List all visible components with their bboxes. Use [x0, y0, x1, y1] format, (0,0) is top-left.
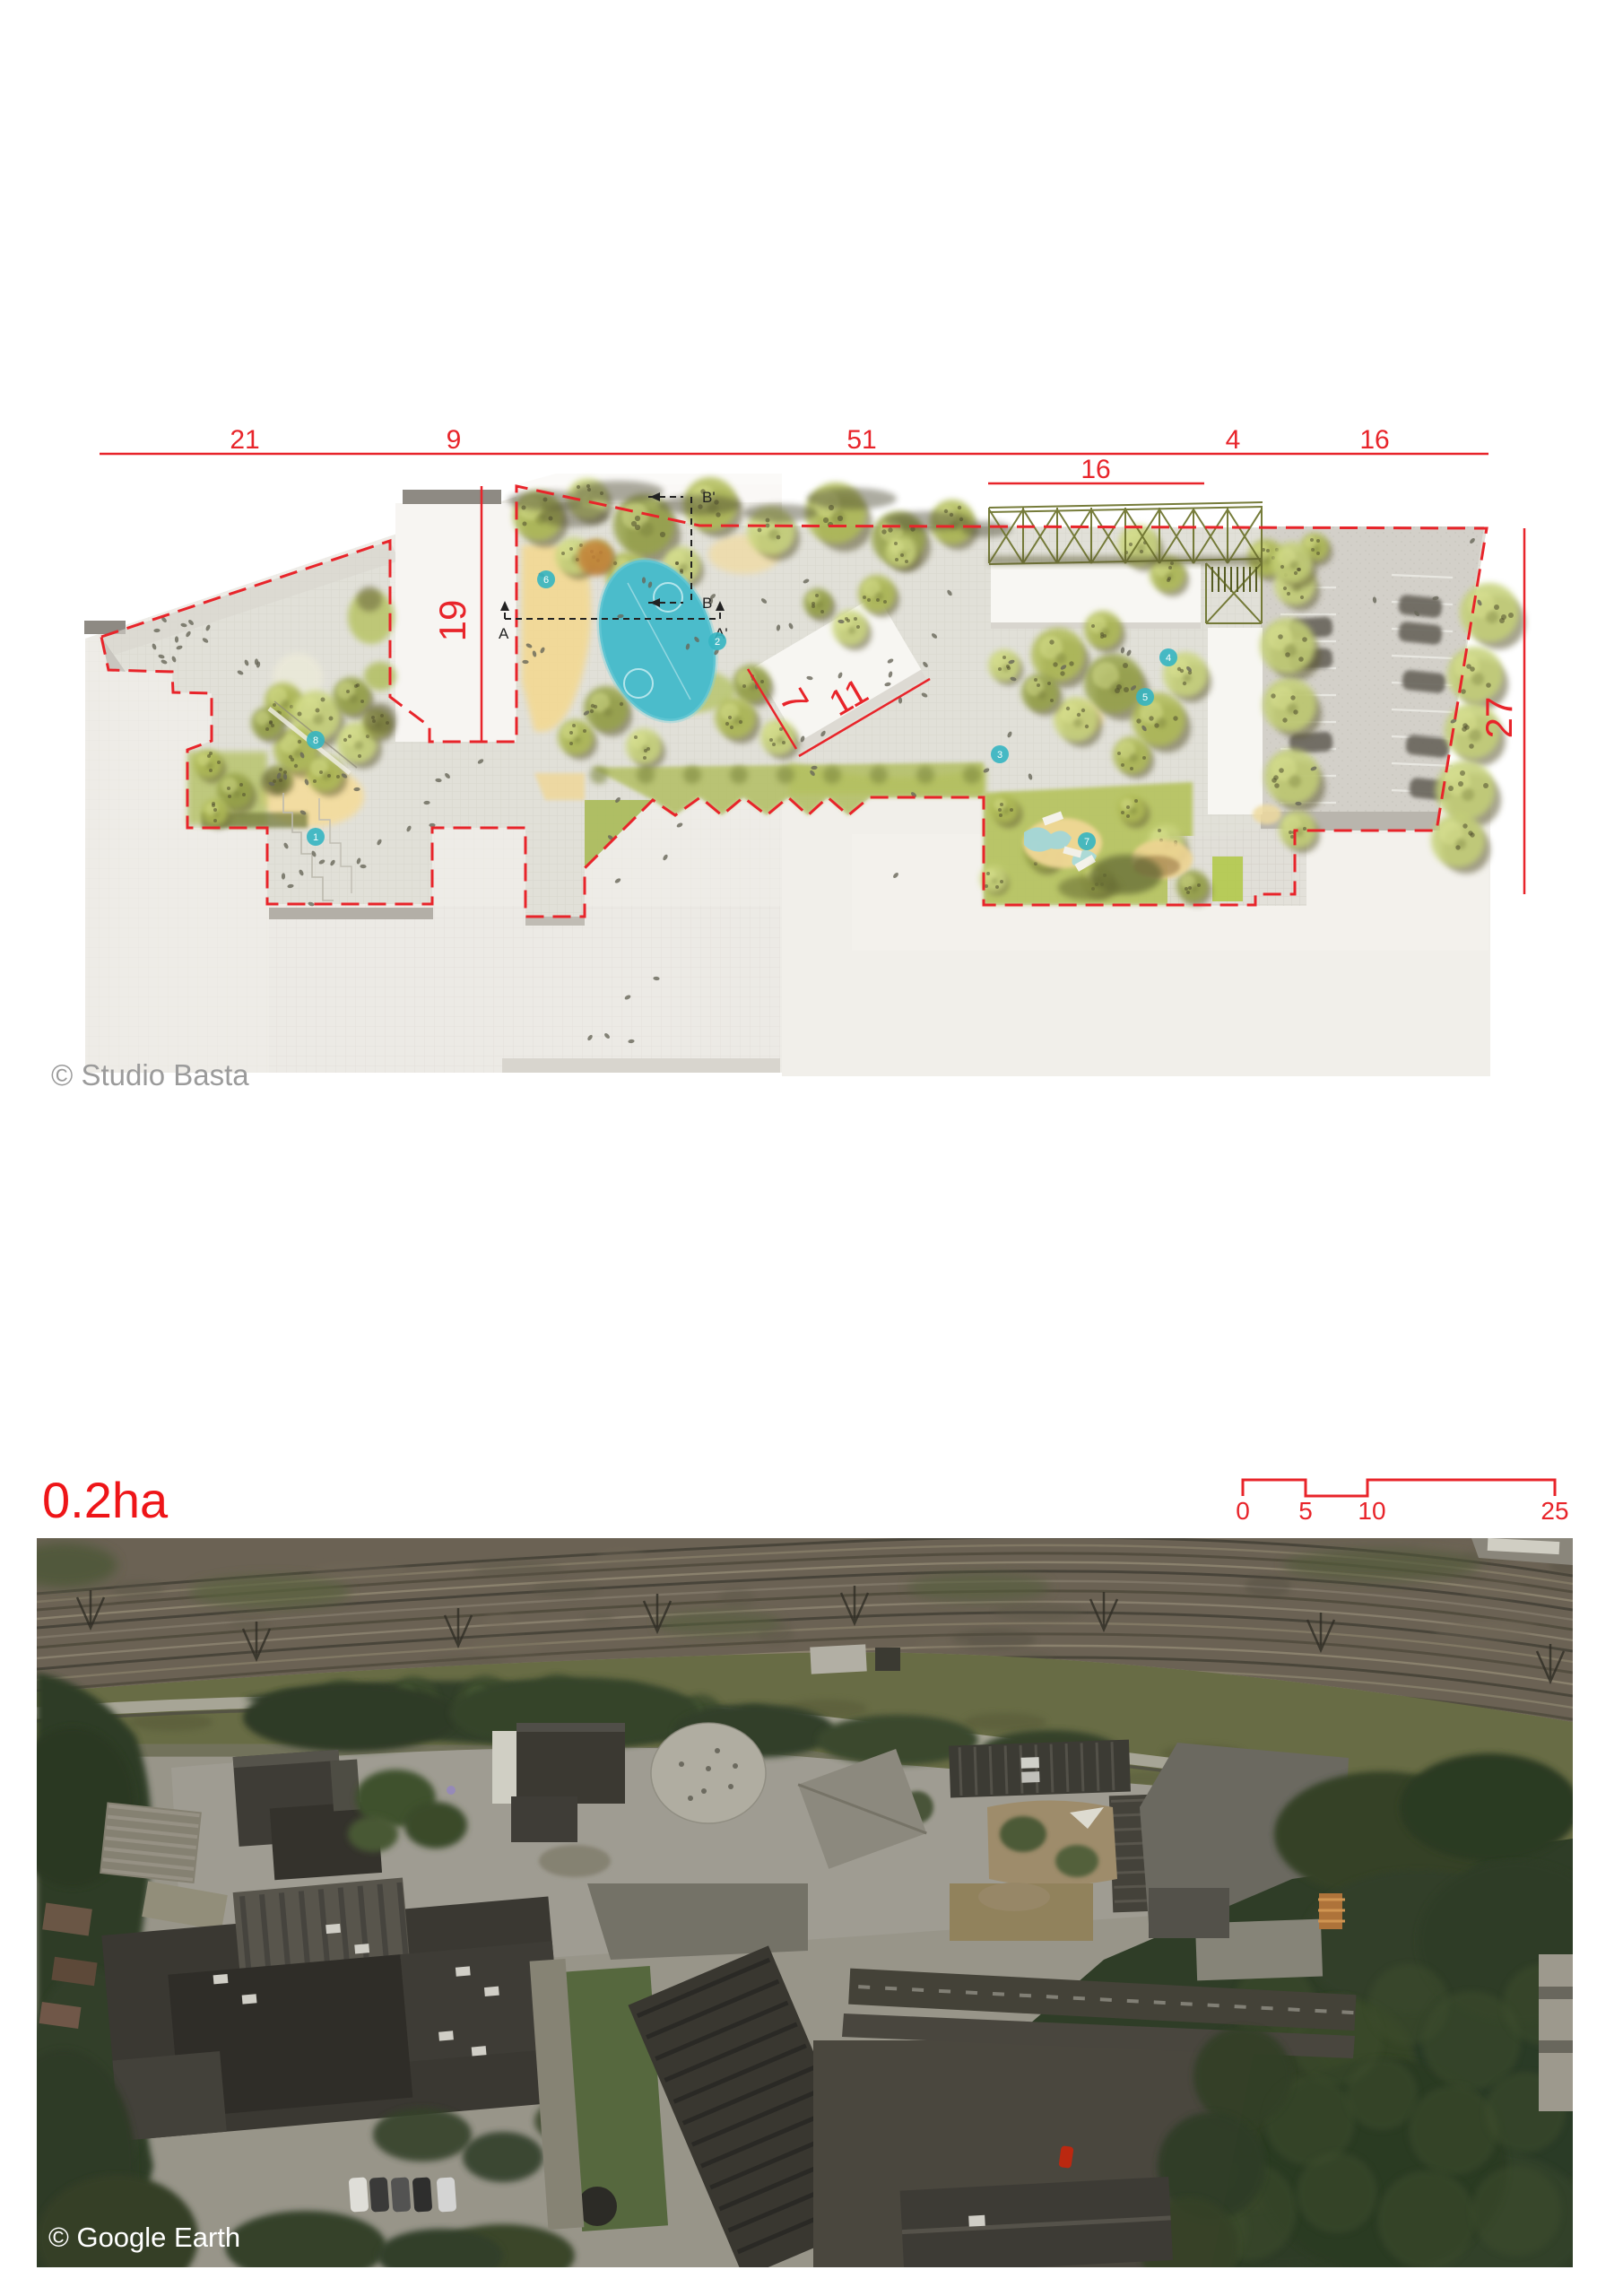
svg-text:9: 9 [447, 425, 462, 455]
svg-text:5: 5 [1298, 1497, 1313, 1525]
svg-text:21: 21 [230, 425, 259, 455]
svg-text:0.2ha: 0.2ha [42, 1472, 169, 1528]
svg-text:25: 25 [1541, 1497, 1568, 1525]
svg-text:5: 5 [1142, 692, 1148, 703]
svg-text:© Studio Basta: © Studio Basta [51, 1058, 249, 1091]
svg-text:B: B [702, 595, 712, 612]
svg-text:6: 6 [543, 575, 549, 586]
svg-text:10: 10 [1358, 1497, 1385, 1525]
svg-text:4: 4 [1166, 653, 1171, 664]
svg-text:© Google Earth: © Google Earth [48, 2222, 240, 2253]
svg-text:B': B' [702, 489, 716, 506]
svg-text:27: 27 [1478, 697, 1520, 739]
svg-text:2: 2 [715, 637, 720, 648]
svg-text:16: 16 [1081, 455, 1110, 484]
svg-text:19: 19 [431, 600, 473, 642]
svg-text:A: A [499, 625, 509, 642]
svg-text:7: 7 [1084, 837, 1089, 848]
svg-text:51: 51 [846, 425, 876, 455]
svg-text:1: 1 [313, 832, 318, 843]
svg-text:16: 16 [1359, 425, 1389, 455]
svg-text:3: 3 [997, 750, 1002, 761]
svg-text:4: 4 [1226, 425, 1241, 455]
svg-text:8: 8 [313, 735, 318, 746]
svg-text:0: 0 [1236, 1497, 1250, 1525]
